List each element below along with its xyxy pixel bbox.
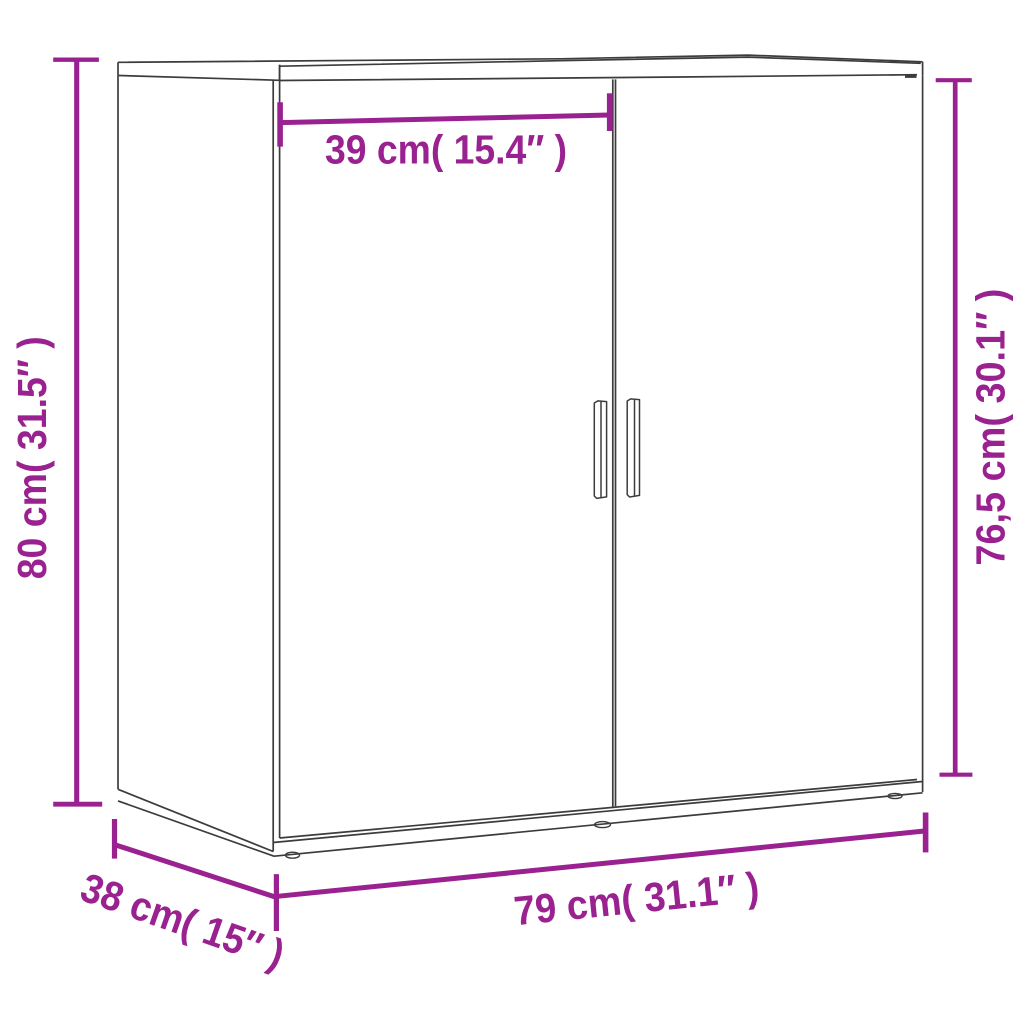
svg-text:80 cm( 31.5″ ): 80 cm( 31.5″ ) [9, 336, 55, 579]
svg-text:76,5 cm( 30.1″ ): 76,5 cm( 30.1″ ) [968, 289, 1014, 566]
svg-text:39 cm( 15.4″ ): 39 cm( 15.4″ ) [325, 127, 567, 173]
